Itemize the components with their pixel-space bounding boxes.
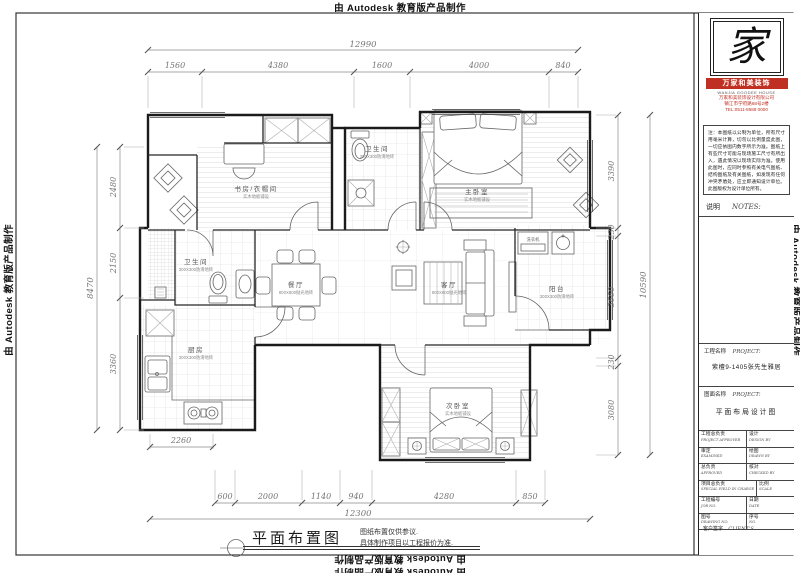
dim-bottom-0: 600	[217, 492, 232, 501]
dim-top-1: 4380	[267, 61, 288, 70]
table-cell-approved: 总负责APPROVED	[699, 464, 747, 480]
footer-note-2: 具体制作项目以工程报价为准.	[360, 539, 453, 550]
autodesk-credit-left: 由 Autodesk 教育版产品制作	[1, 140, 15, 440]
notes-label-row: 说明 NOTES:	[699, 199, 794, 217]
title-block: 家 万家和美装饰 WANJIA GOODEE HOUSE 万家和美装饰设计有限公…	[698, 13, 794, 555]
dim-left-0: 2480	[109, 177, 118, 198]
logo-inner-border	[713, 21, 781, 73]
dim-bottom-4: 4280	[433, 492, 454, 501]
room-label-bath1: 卫生间	[365, 144, 389, 153]
room-spec-kitchen: 300X300防滑地砖	[179, 354, 214, 361]
room-label-living: 客厅	[441, 280, 457, 289]
autodesk-credit-bottom-clipped: 由 Autodesk 教育版产品制作	[250, 566, 550, 573]
dim-right-4: 3080	[607, 400, 616, 420]
dim-left-1: 2150	[109, 253, 118, 274]
dim-right-1: 230	[607, 224, 616, 240]
table-cell-examined: 审定EXAMINED	[699, 448, 747, 464]
dim-kitchen: 2260	[170, 436, 191, 445]
footer-notes: 图纸布置仅供参议. 具体制作项目以工程报价为准.	[360, 528, 453, 549]
drawing-title: 平面布置图	[252, 527, 342, 548]
room-spec-study: 实木地板铺设	[243, 193, 269, 200]
client-signature-row: 客户签字 CLIENT'S	[699, 523, 794, 555]
dim-left-2: 3360	[109, 354, 118, 374]
drawing-name-section: 图面名称 PROJECT: 平面布局设计图	[699, 387, 794, 430]
table-cell-approver: 工程总负责PROJECT APPROVER	[699, 431, 747, 447]
dim-right-total: 10590	[639, 271, 649, 299]
room-label-dining: 餐厅	[288, 280, 304, 289]
dim-top-2: 1600	[372, 61, 392, 70]
project-label-zh: 工程名称	[704, 349, 726, 355]
room-spec-bed2: 实木地板铺设	[445, 410, 471, 417]
room-spec-living: 800X800抛光地砖	[432, 289, 467, 296]
project-name-value: 紫檀9-1405张先生雅居	[704, 362, 789, 371]
floor-plan: 1560 4380 1600 4000 840 12990 600 2000 1…	[0, 0, 800, 573]
dim-bottom-5: 850	[522, 492, 537, 501]
dim-top-total: 12990	[349, 40, 377, 50]
autodesk-credit-top: 由 Autodesk 教育版产品制作	[250, 0, 550, 14]
client-label-en: CLIENT'S	[728, 526, 753, 532]
room-label-bed2: 次卧室	[446, 401, 470, 410]
company-logo: 家	[710, 18, 784, 76]
dim-right-2: 3660	[607, 287, 616, 307]
room-label-balcony: 阳台	[549, 284, 565, 293]
dim-bottom-total: 12300	[344, 509, 372, 519]
room-label-study: 书房/衣帽间	[234, 184, 277, 193]
drawing-label-zh: 图面名称	[704, 392, 726, 398]
room-spec-master: 实木地板铺设	[464, 196, 490, 203]
room-spec-dining: 800X800抛光地砖	[279, 289, 314, 296]
cad-sheet: 由 Autodesk 教育版产品制作 由 Autodesk 教育版产品制作 由 …	[0, 0, 800, 573]
table-cell-job-no: 工程编号JOB NO.	[699, 497, 747, 513]
logo-section: 家 万家和美装饰 WANJIA GOODEE HOUSE 万家和美装饰设计有限公…	[699, 13, 794, 114]
notes-label-zh: 说明	[706, 204, 720, 211]
project-name-section: 工程名称 PROJECT: 紫檀9-1405张先生雅居	[699, 343, 794, 387]
table-cell-date: 日期DATE	[747, 497, 794, 513]
room-spec-balcony: 300X300防滑地砖	[540, 293, 575, 300]
dim-top-0: 1560	[165, 61, 185, 70]
table-cell-drawn: 绘图DRAWN BY	[747, 448, 794, 464]
general-notes: 注：本图纸以公制为单位，所有尺寸用毫米计算，切勿以比例量度此图，一切应依图内数字…	[703, 125, 790, 195]
notes-label-en: NOTES:	[732, 203, 761, 211]
table-cell-design: 设计DESIGN BY	[747, 431, 794, 447]
footer-note-1: 图纸布置仅供参议.	[360, 528, 453, 539]
dim-top-3: 4000	[468, 61, 489, 70]
room-label-master: 主卧室	[465, 187, 489, 196]
company-phone: TEL:0511-8588 0000	[699, 107, 794, 113]
drawing-label-en: PROJECT:	[733, 392, 761, 398]
drawing-name-value: 平面布局设计图	[704, 406, 789, 416]
client-label-zh: 客户签字	[703, 526, 723, 532]
autodesk-credit-bottom: 由 Autodesk 教育版产品制作	[250, 553, 550, 567]
dim-bottom-2: 1140	[311, 492, 331, 501]
table-cell-checked: 核对CHECKED BY	[747, 464, 794, 480]
project-label-en: PROJECT:	[733, 349, 761, 355]
table-cell-special-field: 项目总负责SPECIAL FIELD IN CHARGE	[699, 481, 757, 497]
brand-banner: 万家和美装饰	[706, 78, 788, 89]
table-cell-scale: 比例SCALE	[757, 481, 794, 497]
dim-bottom-1: 2000	[257, 492, 278, 501]
dim-right-0: 3390	[607, 161, 616, 181]
dim-top-4: 840	[555, 61, 570, 70]
label-washer: 洗衣机	[527, 236, 541, 243]
room-spec-bath1: 300X300防滑地砖	[360, 153, 395, 160]
room-label-bath2: 卫生间	[184, 257, 208, 266]
approval-table: 工程总负责PROJECT APPROVER 设计DESIGN BY 审定EXAM…	[699, 430, 794, 530]
dim-bottom-3: 940	[348, 492, 363, 501]
dim-left-total: 8470	[86, 277, 96, 299]
dim-right-3: 230	[607, 354, 616, 370]
room-spec-bath2: 300X300防滑地砖	[179, 266, 214, 273]
room-label-kitchen: 厨房	[188, 345, 204, 354]
